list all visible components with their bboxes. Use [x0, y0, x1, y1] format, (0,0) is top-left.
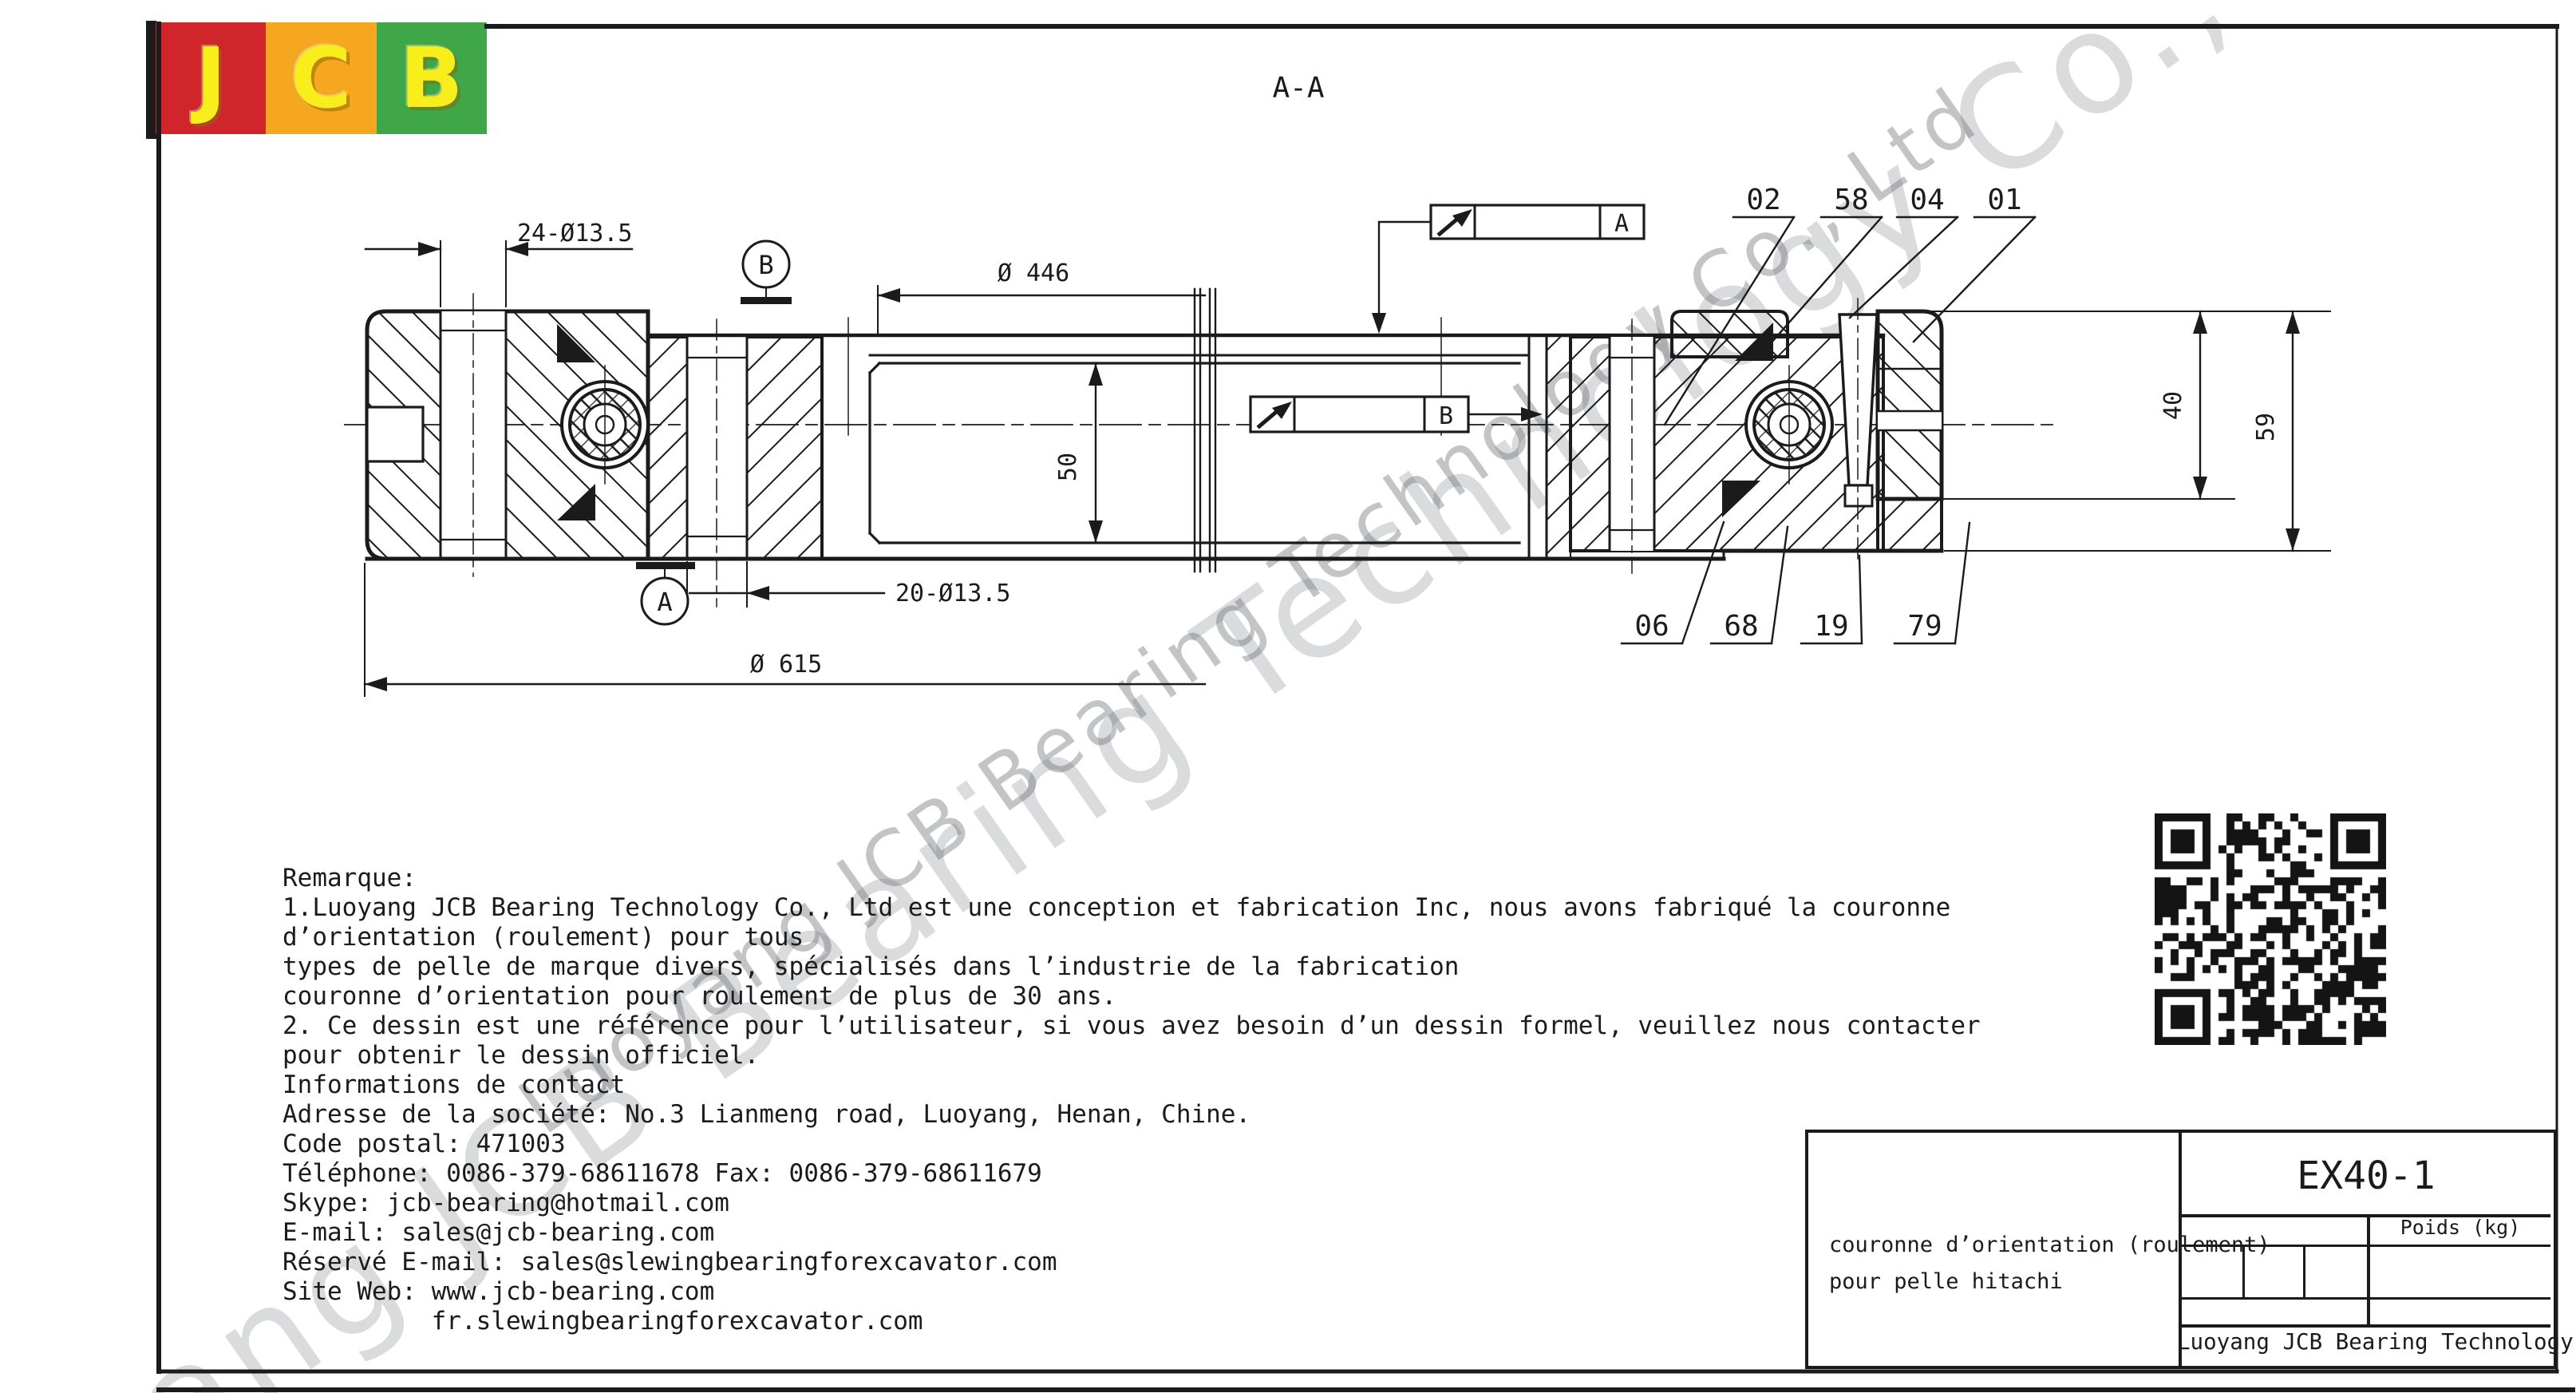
note-line: fr.slewingbearingforexcavator.com	[282, 1307, 2046, 1336]
note-line: Téléphone: 0086-379-68611678 Fax: 0086-3…	[282, 1159, 2046, 1189]
callout-79: 79	[1907, 610, 1942, 643]
svg-text:59: 59	[2252, 413, 2280, 441]
note-line: 2. Ce dessin est une référence pour l’ut…	[282, 1011, 2046, 1041]
note-line: E-mail: sales@jcb-bearing.com	[282, 1218, 2046, 1248]
callout-02: 02	[1746, 184, 1780, 216]
note-line: Skype: jcb-bearing@hotmail.com	[282, 1189, 2046, 1218]
note-line: Réservé E-mail: sales@slewingbearingfore…	[282, 1248, 2046, 1277]
description-line2: pour pelle hitachi	[1829, 1264, 2270, 1300]
note-line: Site Web: www.jcb-bearing.com	[282, 1277, 2046, 1307]
note-line: couronne d’orientation pour roulement de…	[282, 982, 2046, 1011]
drawing-sheet: Luoyang JCB Bearing Technology Co., Ltd …	[0, 0, 2576, 1393]
note-line: Adresse de la société: No.3 Lianmeng roa…	[282, 1100, 2046, 1130]
dim-ring-height: 40	[1878, 311, 2330, 499]
section-label: A-A	[1272, 72, 1324, 105]
callout-04: 04	[1910, 184, 1944, 216]
svg-text:Ø 446: Ø 446	[998, 259, 1069, 287]
dim-total-height: 59	[1945, 311, 2330, 551]
dim-bolt-holes-bottom: 20-Ø13.5	[687, 562, 1011, 607]
svg-text:Ø 615: Ø 615	[750, 651, 822, 679]
note-line: pour obtenir le dessin officiel.	[282, 1041, 2046, 1070]
dim-raceway-diameter: Ø 446	[878, 259, 1205, 334]
finish-box-top: A	[1372, 205, 1644, 334]
qr-code	[2155, 813, 2386, 1045]
svg-text:24-Ø13.5: 24-Ø13.5	[517, 220, 633, 247]
datum-balloon-bottom: A	[636, 562, 695, 624]
part-description: couronne d’orientation (roulement) pour …	[1829, 1227, 2270, 1300]
dim-outer-diameter: Ø 615	[365, 564, 1205, 696]
callout-58: 58	[1834, 184, 1868, 216]
callout-06: 06	[1634, 610, 1669, 643]
datum-balloon-top: B	[741, 241, 792, 304]
part-number: EX40-1	[2182, 1154, 2550, 1198]
break-lines	[1195, 289, 1215, 572]
note-line: Code postal: 471003	[282, 1130, 2046, 1159]
svg-text:20-Ø13.5: 20-Ø13.5	[895, 580, 1011, 607]
weight-label: Poids (kg)	[2370, 1216, 2550, 1239]
svg-text:40: 40	[2159, 391, 2187, 420]
svg-text:A: A	[1614, 210, 1629, 238]
note-line: Informations de contact	[282, 1070, 2046, 1100]
dim-bolt-holes-top: 24-Ø13.5	[365, 220, 633, 307]
description-line1: couronne d’orientation (roulement)	[1829, 1227, 2270, 1264]
callout-68: 68	[1724, 610, 1758, 643]
finish-box-side: B	[1250, 397, 1543, 432]
notes-block: Remarque: 1.Luoyang JCB Bearing Technolo…	[282, 864, 2046, 1336]
svg-text:B: B	[758, 250, 773, 280]
company-name: Luoyang JCB Bearing Technology Co., Ltd	[2177, 1329, 2550, 1355]
callout-19: 19	[1814, 610, 1848, 643]
title-block: couronne d’orientation (roulement) pour …	[1805, 1130, 2557, 1369]
callout-01: 01	[1987, 184, 2021, 216]
note-line: d’orientation (roulement) pour tous	[282, 923, 2046, 952]
svg-text:A: A	[657, 587, 672, 617]
note-line: Remarque:	[282, 864, 2046, 893]
note-line: types de pelle de marque divers, spécial…	[282, 952, 2046, 982]
svg-text:50: 50	[1054, 453, 1082, 481]
dim-inner-height: 50	[1054, 363, 1103, 543]
note-line: 1.Luoyang JCB Bearing Technology Co., Lt…	[282, 893, 2046, 923]
svg-text:B: B	[1439, 402, 1453, 430]
